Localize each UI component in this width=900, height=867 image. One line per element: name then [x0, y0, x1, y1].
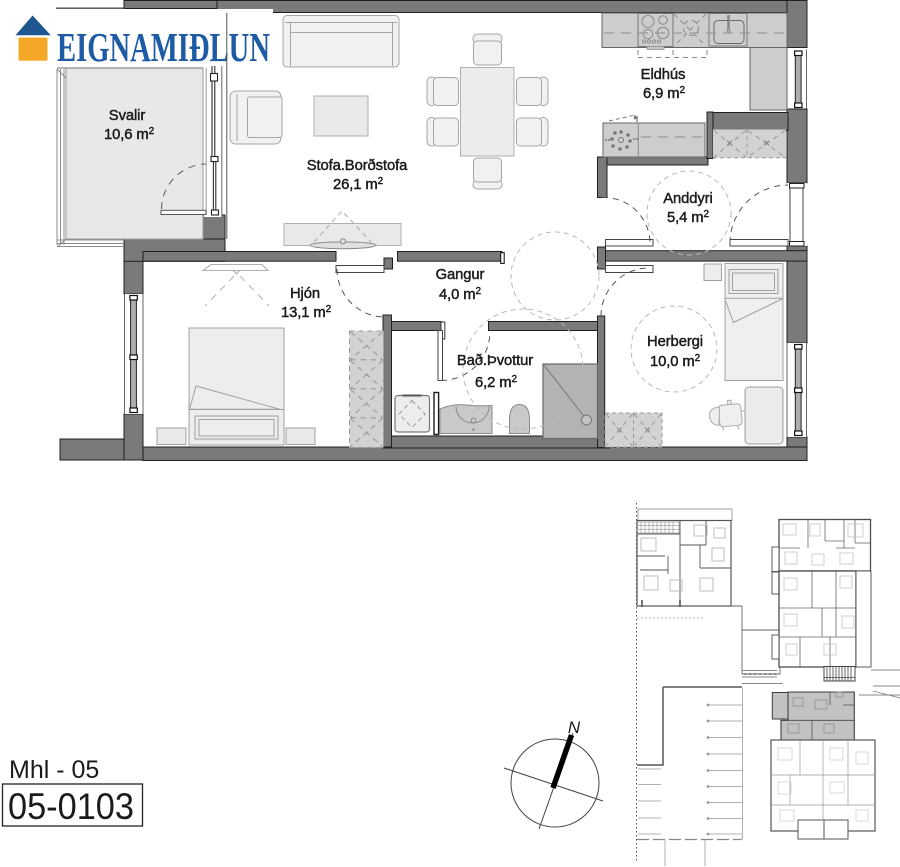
svg-text:N: N: [568, 718, 581, 737]
svg-text:Hjón: Hjón: [290, 286, 320, 302]
svg-text:Mhl - 05: Mhl - 05: [9, 756, 99, 784]
svg-text:6,9 m2: 6,9 m2: [643, 85, 686, 102]
svg-text:26,1 m2: 26,1 m2: [333, 176, 384, 193]
svg-text:05-0103: 05-0103: [8, 786, 134, 827]
svg-text:Eldhús: Eldhús: [641, 67, 686, 83]
svg-text:Herbergi: Herbergi: [647, 334, 703, 350]
svg-text:6,2 m2: 6,2 m2: [475, 374, 518, 391]
svg-text:Stofa.Borðstofa: Stofa.Borðstofa: [307, 158, 408, 174]
svg-text:10,0 m2: 10,0 m2: [650, 353, 701, 370]
svg-text:5,4 m2: 5,4 m2: [667, 209, 710, 226]
svg-text:10,6 m2: 10,6 m2: [104, 126, 155, 143]
svg-text:Anddyri: Anddyri: [663, 191, 712, 207]
svg-text:13,1 m2: 13,1 m2: [281, 304, 332, 321]
svg-text:Bað.Þvottur: Bað.Þvottur: [457, 353, 533, 369]
svg-text:4,0 m2: 4,0 m2: [439, 286, 482, 303]
svg-text:Gangur: Gangur: [436, 267, 485, 283]
svg-text:Svalir: Svalir: [109, 108, 146, 124]
svg-text:EIGNAMIÐLUN: EIGNAMIÐLUN: [57, 24, 270, 70]
